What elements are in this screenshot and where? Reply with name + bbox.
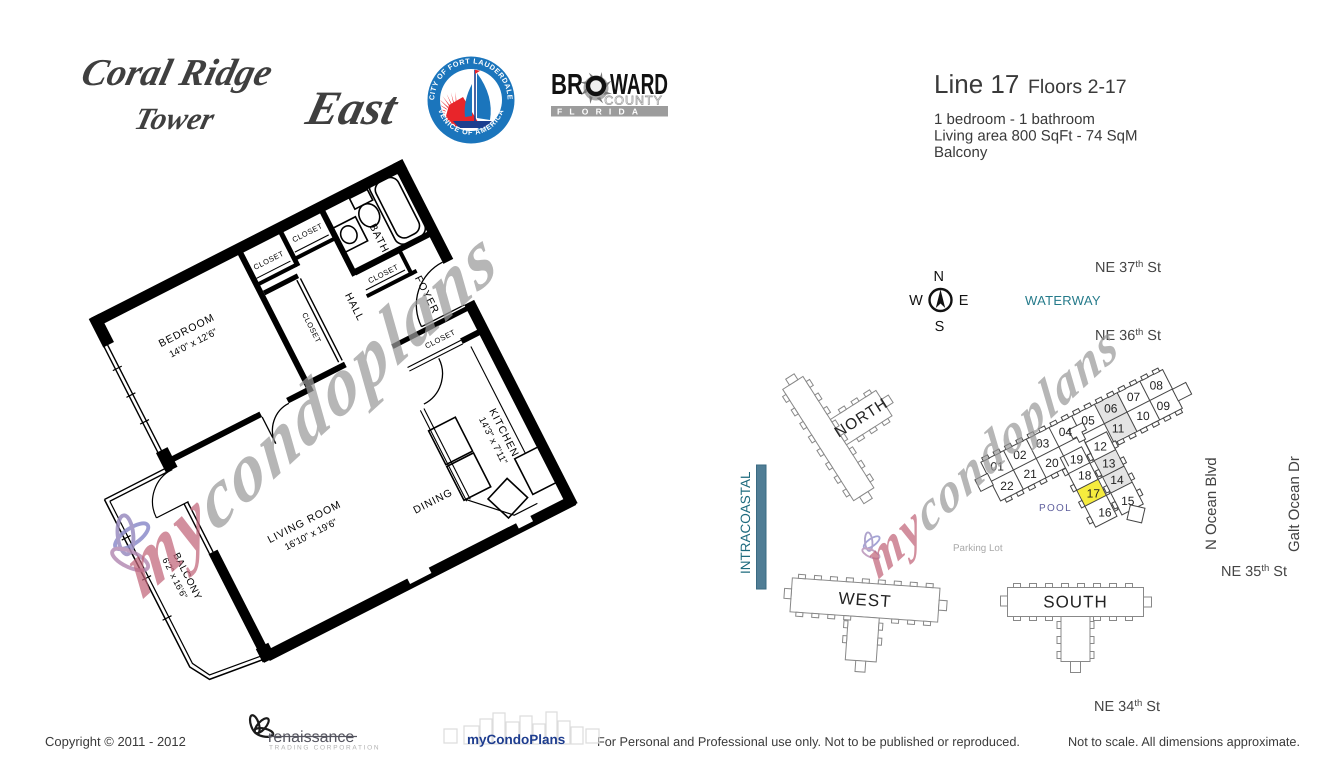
svg-text:06: 06 (1104, 402, 1118, 416)
svg-text:INTRACOASTAL: INTRACOASTAL (738, 471, 753, 574)
svg-text:Parking Lot: Parking Lot (953, 543, 1003, 554)
svg-text:FLORIDA: FLORIDA (557, 107, 645, 117)
svg-text:09: 09 (1157, 399, 1171, 413)
svg-text:WEST: WEST (838, 589, 892, 612)
svg-text:15: 15 (1121, 494, 1135, 508)
svg-text:1 bedroom - 1 bathroom: 1 bedroom - 1 bathroom (934, 111, 1095, 128)
svg-text:COUNTY: COUNTY (604, 94, 663, 108)
svg-text:TRADING CORPORATION: TRADING CORPORATION (269, 745, 380, 752)
svg-text:renaissance: renaissance (268, 729, 354, 746)
svg-text:Copyright © 2011 - 2012: Copyright © 2011 - 2012 (45, 734, 186, 749)
svg-text:Floors 2-17: Floors 2-17 (1028, 76, 1127, 98)
svg-text:Line 17: Line 17 (934, 69, 1019, 99)
svg-text:12: 12 (1094, 439, 1108, 453)
svg-text:16: 16 (1098, 506, 1112, 520)
svg-text:14: 14 (1110, 473, 1124, 487)
svg-text:BR: BR (551, 69, 583, 101)
svg-text:Living area 800 SqFt - 74 Sq: Living area 800 SqFt - 74 SqM (934, 128, 1137, 145)
svg-text:For Personal and Professional: For Personal and Professional use only. … (597, 735, 1020, 749)
svg-text:WATERWAY: WATERWAY (1025, 293, 1101, 308)
svg-text:19: 19 (1070, 452, 1084, 466)
svg-text:NE 35th St: NE 35th St (1221, 563, 1287, 580)
svg-text:S: S (935, 319, 945, 335)
svg-text:04: 04 (1059, 425, 1073, 439)
svg-text:NE 34th St: NE 34th St (1094, 698, 1160, 715)
svg-text:20: 20 (1045, 456, 1059, 470)
svg-text:Coral Ridge: Coral Ridge (77, 52, 277, 94)
svg-text:W: W (909, 293, 923, 309)
svg-text:N Ocean Blvd: N Ocean Blvd (1203, 457, 1220, 550)
svg-text:07: 07 (1127, 390, 1141, 404)
svg-text:myCondoPlans: myCondoPlans (467, 732, 565, 747)
svg-text:10: 10 (1136, 409, 1150, 423)
svg-text:13: 13 (1102, 457, 1116, 471)
svg-text:East: East (300, 82, 404, 135)
svg-text:Balcony: Balcony (934, 144, 988, 161)
svg-text:18: 18 (1078, 468, 1092, 482)
svg-text:22: 22 (1000, 479, 1014, 493)
svg-text:17: 17 (1087, 486, 1101, 500)
svg-text:E: E (959, 293, 969, 309)
svg-text:05: 05 (1081, 413, 1095, 427)
svg-text:POOL: POOL (1039, 503, 1072, 514)
svg-text:08: 08 (1150, 379, 1164, 393)
svg-text:SOUTH: SOUTH (1043, 593, 1108, 612)
svg-text:21: 21 (1023, 467, 1037, 481)
svg-text:Not to scale. All dimensions: Not to scale. All dimensions approximate… (1068, 735, 1300, 749)
svg-text:NE 37th St: NE 37th St (1095, 259, 1161, 276)
svg-text:Galt Ocean Dr: Galt Ocean Dr (1286, 456, 1303, 552)
svg-text:N: N (934, 269, 944, 285)
svg-text:Tower: Tower (131, 101, 219, 136)
svg-text:11: 11 (1112, 421, 1125, 435)
